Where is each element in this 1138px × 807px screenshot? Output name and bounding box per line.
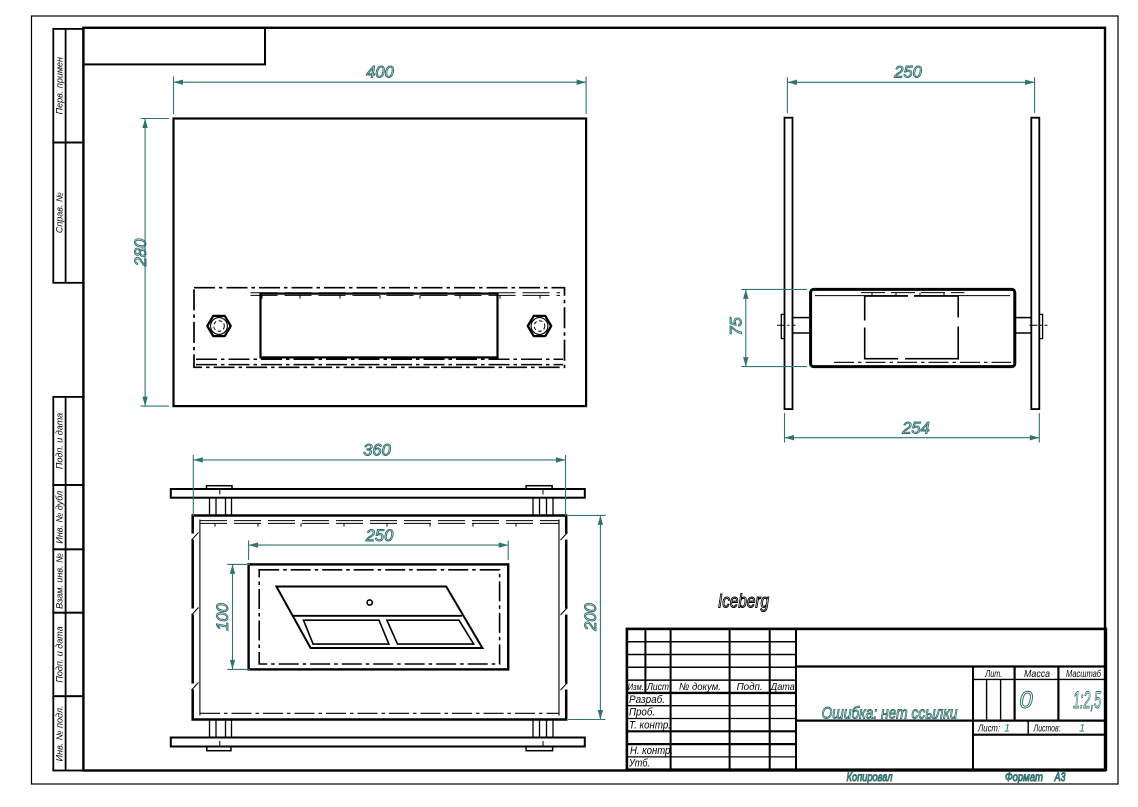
svg-text:Лист:: Лист:	[977, 723, 1000, 735]
svg-text:Листов:: Листов:	[1033, 723, 1061, 735]
svg-text:Масштаб: Масштаб	[1066, 668, 1102, 680]
svg-text:Взам. инв. №: Взам. инв. №	[55, 553, 65, 609]
svg-text:1: 1	[1004, 723, 1010, 735]
svg-text:Разраб.: Разраб.	[629, 694, 665, 706]
svg-text:Перв. примен: Перв. примен	[55, 57, 65, 114]
svg-text:Дата: Дата	[770, 681, 795, 693]
svg-text:Инв. № дубл: Инв. № дубл	[55, 491, 65, 544]
svg-text:Инв. № подл.: Инв. № подл.	[55, 705, 65, 761]
svg-text:360: 360	[363, 442, 391, 460]
svg-text:Изм.: Изм.	[628, 682, 644, 692]
svg-text:Справ. №: Справ. №	[55, 192, 65, 233]
svg-text:250: 250	[365, 527, 394, 545]
svg-text:А3: А3	[1054, 770, 1066, 784]
svg-text:100: 100	[214, 602, 232, 630]
svg-text:0: 0	[1019, 687, 1033, 714]
svg-text:Утб.: Утб.	[628, 758, 650, 770]
svg-text:Подп. и дата: Подп. и дата	[55, 626, 65, 682]
svg-text:Н. контр.: Н. контр.	[630, 745, 673, 757]
svg-text:250: 250	[893, 64, 922, 82]
svg-text:1:2,5: 1:2,5	[1073, 687, 1101, 714]
svg-text:Т. контр.: Т. контр.	[629, 720, 671, 732]
svg-text:75: 75	[728, 317, 746, 336]
svg-text:Копировал: Копировал	[847, 770, 893, 784]
svg-text:200: 200	[582, 602, 600, 631]
svg-text:Лист: Лист	[646, 681, 669, 693]
svg-text:Iceberg: Iceberg	[718, 591, 769, 613]
svg-text:400: 400	[366, 64, 394, 82]
svg-text:Формат: Формат	[1005, 770, 1043, 784]
svg-text:Подп. и дата: Подп. и дата	[55, 413, 65, 469]
svg-text:Подп.: Подп.	[737, 681, 763, 693]
svg-text:Лит.: Лит.	[985, 668, 1003, 680]
svg-text:280: 280	[132, 238, 150, 267]
svg-text:Проб.: Проб.	[629, 707, 655, 719]
svg-text:254: 254	[901, 420, 930, 438]
svg-text:№ докум.: № докум.	[679, 681, 721, 693]
svg-text:1: 1	[1079, 723, 1085, 735]
svg-text:Масса: Масса	[1024, 668, 1050, 680]
svg-text:Ошибка: нет ссылки: Ошибка: нет ссылки	[822, 704, 958, 723]
